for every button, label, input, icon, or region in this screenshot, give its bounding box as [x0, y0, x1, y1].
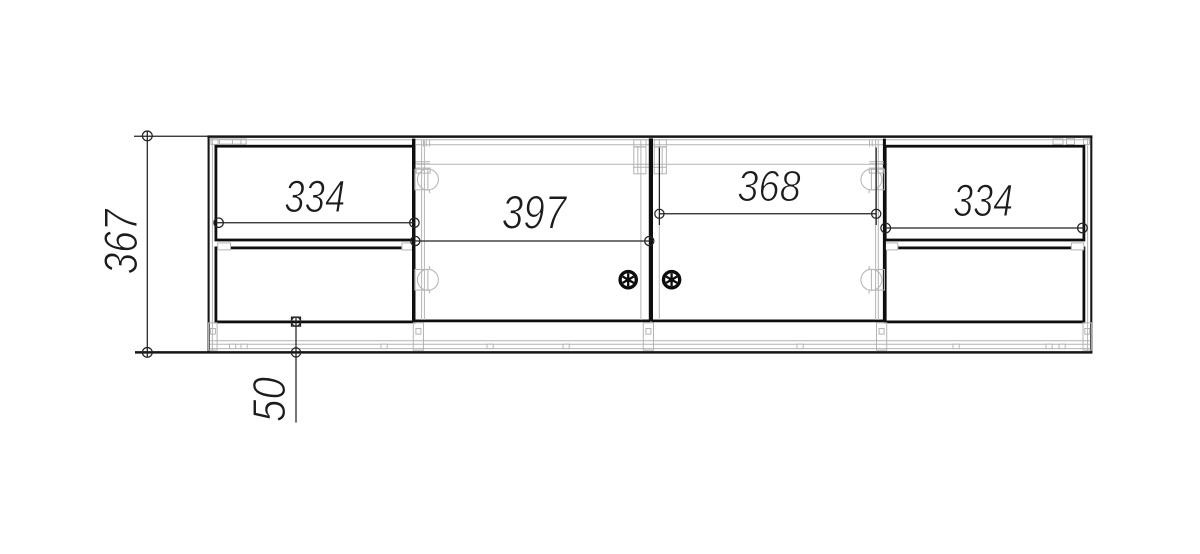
svg-text:334: 334 [953, 175, 1013, 226]
svg-text:368: 368 [737, 162, 801, 211]
svg-text:397: 397 [502, 185, 568, 238]
svg-text:50: 50 [243, 377, 295, 422]
svg-text:367: 367 [94, 208, 147, 275]
svg-text:334: 334 [284, 171, 345, 222]
